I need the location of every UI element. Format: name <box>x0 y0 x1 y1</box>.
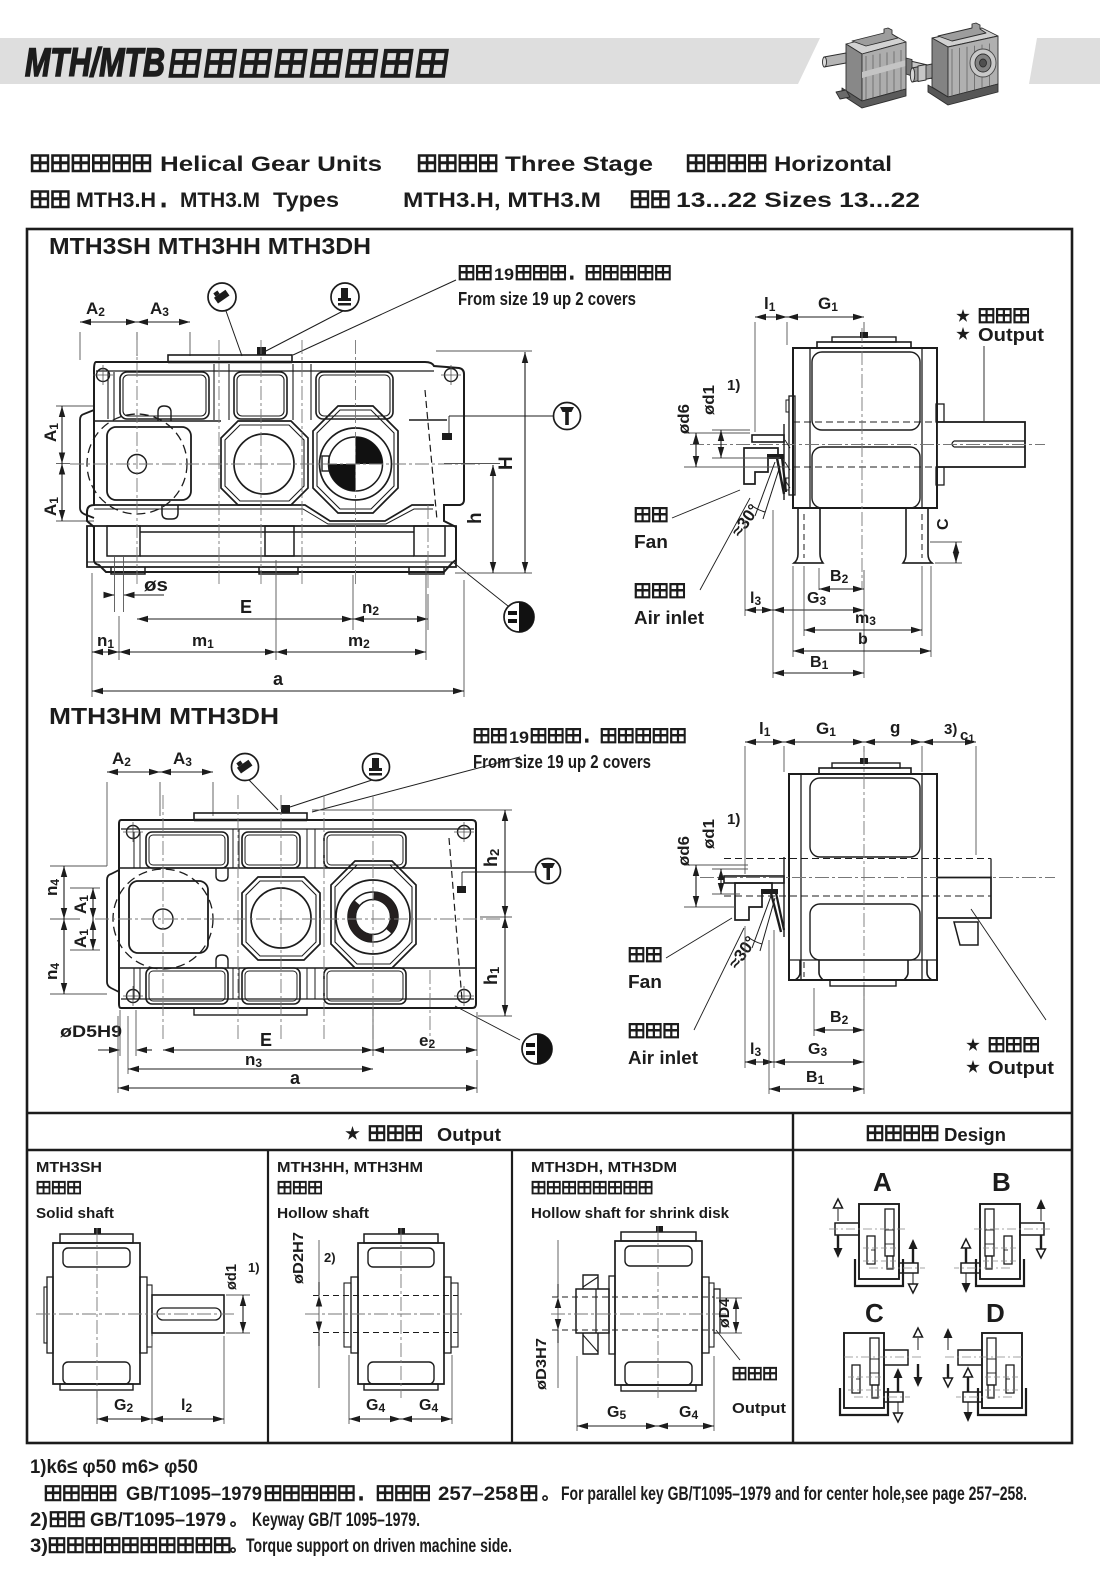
svg-text:3): 3) <box>30 1536 48 1557</box>
svg-text:ød6: ød6 <box>676 836 693 866</box>
svg-text:øD2H7: øD2H7 <box>290 1232 307 1284</box>
svg-text:D: D <box>986 1298 1005 1328</box>
svg-text:ød1: ød1 <box>223 1264 240 1290</box>
svg-text:MTH3.H, MTH3.M: MTH3.H, MTH3.M <box>403 189 601 212</box>
svg-text:ød6: ød6 <box>676 404 693 434</box>
svg-text:MTH3.H: MTH3.H <box>76 189 156 212</box>
svg-text:ød1: ød1 <box>701 385 718 415</box>
svg-text:Three Stage: Three Stage <box>505 153 653 176</box>
svg-text:19: 19 <box>494 265 514 284</box>
svg-text:257–258: 257–258 <box>438 1484 518 1505</box>
svg-text:For parallel key GB/T1095–1979: For parallel key GB/T1095–1979 and for c… <box>561 1484 1027 1505</box>
svg-text:Types: Types <box>273 189 339 212</box>
svg-text:3): 3) <box>944 721 957 738</box>
svg-text:øs: øs <box>144 575 168 595</box>
svg-text:g: g <box>890 718 900 737</box>
svg-text:Fan: Fan <box>628 972 662 992</box>
svg-text:Output: Output <box>732 1400 786 1417</box>
svg-text:C: C <box>935 518 952 530</box>
svg-text:øD4: øD4 <box>716 1297 733 1328</box>
svg-text:h: h <box>465 512 486 524</box>
svg-text:Hollow shaft: Hollow shaft <box>277 1205 369 1222</box>
svg-text:GB/T1095–1979: GB/T1095–1979 <box>90 1510 226 1531</box>
svg-text:øD3H7: øD3H7 <box>533 1338 550 1390</box>
svg-text:MTH/MTB: MTH/MTB <box>25 41 165 85</box>
svg-text:b: b <box>858 631 868 648</box>
svg-text:Keyway GB/T 1095–1979.: Keyway GB/T 1095–1979. <box>252 1510 420 1531</box>
svg-text:Fan: Fan <box>634 532 668 552</box>
svg-text:Output: Output <box>988 1058 1054 1078</box>
svg-text:Design: Design <box>944 1125 1006 1145</box>
svg-text:B: B <box>992 1167 1011 1197</box>
svg-text:MTH3DH, MTH3DM: MTH3DH, MTH3DM <box>531 1159 677 1176</box>
svg-text:1): 1) <box>727 811 740 828</box>
svg-text:a: a <box>273 669 284 689</box>
svg-text:1): 1) <box>248 1260 260 1275</box>
svg-text:MTH3HH, MTH3HM: MTH3HH, MTH3HM <box>277 1159 423 1176</box>
svg-text:GB/T1095–1979: GB/T1095–1979 <box>126 1484 262 1505</box>
svg-text:Torque support on driven machi: Torque support on driven machine side. <box>246 1536 512 1557</box>
svg-text:2): 2) <box>30 1510 48 1531</box>
svg-text:13...22 Sizes 13...22: 13...22 Sizes 13...22 <box>676 189 920 212</box>
svg-text:H: H <box>496 456 517 470</box>
svg-text:Air inlet: Air inlet <box>628 1048 698 1068</box>
svg-text:ød1: ød1 <box>701 819 718 849</box>
svg-text:19: 19 <box>509 728 529 747</box>
svg-text:1)k6≤ φ50 m6> φ50: 1)k6≤ φ50 m6> φ50 <box>30 1457 198 1478</box>
svg-text:C: C <box>865 1298 884 1328</box>
svg-text:MTH3SH MTH3HH MTH3DH: MTH3SH MTH3HH MTH3DH <box>49 233 371 259</box>
svg-text:Horizontal: Horizontal <box>774 153 892 176</box>
svg-text:a: a <box>290 1068 301 1088</box>
svg-text:Solid shaft: Solid shaft <box>36 1205 114 1222</box>
svg-text:MTH3SH: MTH3SH <box>36 1159 102 1176</box>
svg-text:From size 19 up 2 covers: From size 19 up 2 covers <box>458 289 636 309</box>
svg-text:A: A <box>873 1167 892 1197</box>
svg-text:E: E <box>240 597 252 617</box>
svg-text:MTH3.M: MTH3.M <box>180 189 260 212</box>
svg-text:2): 2) <box>324 1250 336 1265</box>
svg-text:Air inlet: Air inlet <box>634 608 704 628</box>
svg-text:MTH3HM MTH3DH: MTH3HM MTH3DH <box>49 703 279 729</box>
svg-text:Helical Gear Units: Helical Gear Units <box>160 153 382 176</box>
svg-text:E: E <box>260 1030 272 1050</box>
svg-text:Output: Output <box>978 325 1044 345</box>
svg-text:1): 1) <box>727 377 740 394</box>
svg-text:Output: Output <box>437 1125 501 1145</box>
svg-text:Hollow shaft for shrink disk: Hollow shaft for shrink disk <box>531 1205 730 1222</box>
svg-text:øD5H9: øD5H9 <box>60 1022 122 1041</box>
